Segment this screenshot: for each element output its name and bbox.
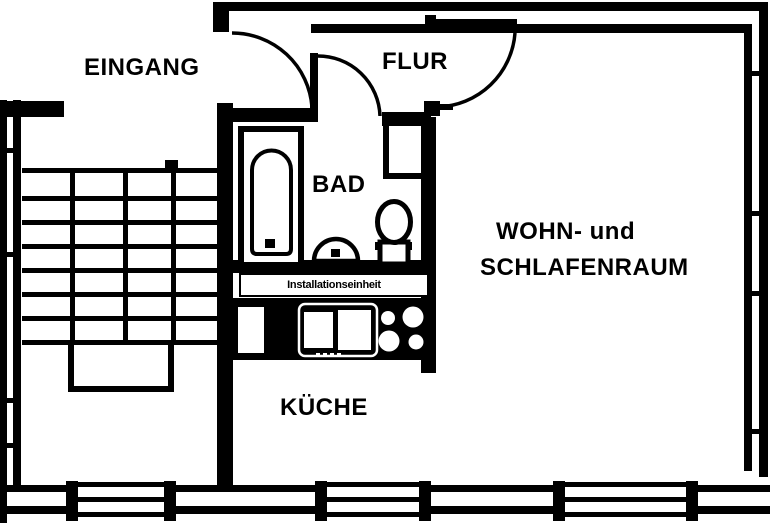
installation-shaft-wall [383,173,431,179]
entrance-door-arc [232,33,312,107]
left-window-mullion [0,252,20,257]
staircase [22,160,218,392]
stairwell-wall [217,103,233,491]
kitchen-counter [233,298,425,360]
doors [232,33,515,116]
room-label-bad: BAD [312,172,366,198]
room-label-kueche: KÜCHE [280,395,368,421]
window-kitchen [315,481,431,521]
installation-unit-box: Installationseinheit [239,273,429,297]
right-window-mullion [744,71,768,76]
left-window-mullion [0,398,20,403]
bathtub [241,129,301,265]
living-room-door-leaf [435,19,517,31]
kitchen-cabinet [238,307,264,353]
stove-burner [403,307,424,328]
stair-newel-post [165,160,178,173]
stair-landing [68,340,174,392]
right-window-mullion [744,429,768,434]
bath-door-arc [317,56,380,116]
installation-shaft-wall [383,117,389,179]
stove-burner [379,331,400,352]
bathtub-drain [265,239,275,248]
room-label-eingang: EINGANG [84,55,200,81]
left-window-mullion [0,148,20,153]
left-window-mullion [0,443,20,448]
right-wall [744,2,768,477]
room-label-wohnraum-line2: SCHLAFENRAUM [480,255,689,281]
window-stairwell [66,481,176,521]
right-window-mullion [744,211,768,216]
sink-basin [338,310,371,350]
room-label-wohnraum-line1: WOHN- und [496,219,635,245]
washbasin [314,239,358,261]
stove-burner [409,335,424,350]
toilet [375,202,412,265]
living-room-door-arc [438,33,515,107]
top-wall [213,2,768,33]
stove-burner [381,311,395,325]
room-label-flur: FLUR [382,49,448,75]
floorplan: EINGANG FLUR BAD WOHN- und SCHLAFENRAUM … [0,0,770,523]
left-wall [0,100,64,523]
sink-basin [304,312,333,348]
washbasin-drain [331,249,340,257]
right-window-mullion [744,291,768,296]
window-living-room [553,481,698,521]
installation-unit-label: Installationseinheit [287,279,381,291]
